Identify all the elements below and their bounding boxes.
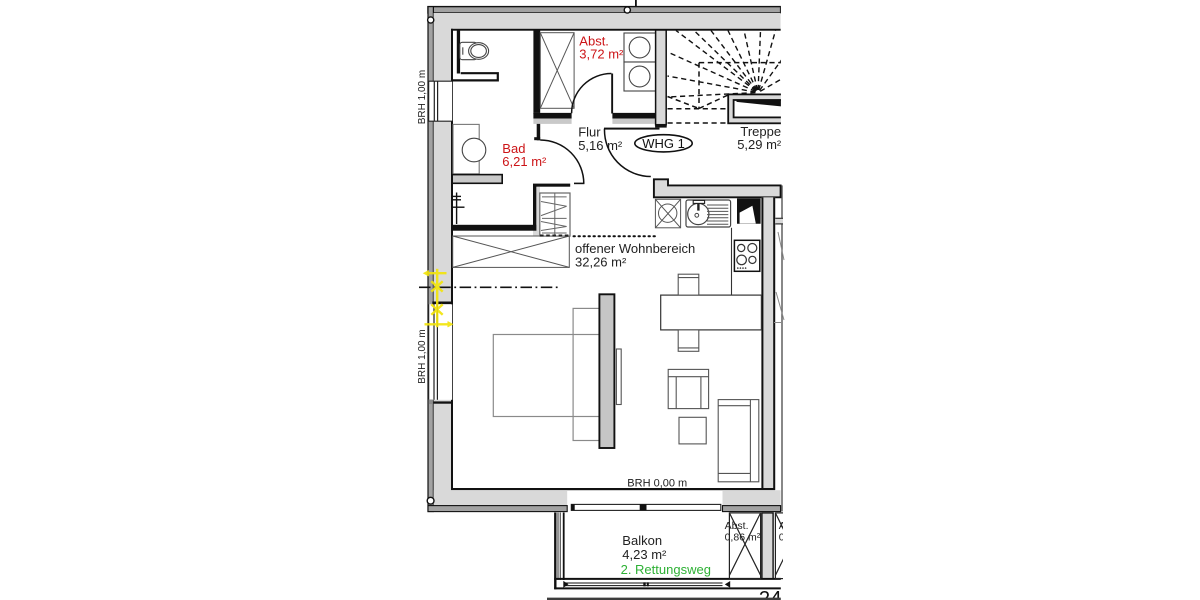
svg-text:5,16 m²: 5,16 m² bbox=[578, 138, 623, 153]
svg-text:4,23 m²: 4,23 m² bbox=[622, 547, 667, 562]
svg-text:2. Rettungsweg: 2. Rettungsweg bbox=[621, 562, 711, 577]
svg-text:Balkon: Balkon bbox=[622, 533, 662, 548]
svg-text:Abst.: Abst. bbox=[725, 520, 749, 532]
svg-text:offener Wohnbereich: offener Wohnbereich bbox=[575, 241, 695, 256]
svg-text:6,21 m²: 6,21 m² bbox=[502, 154, 547, 169]
svg-text:32,26 m²: 32,26 m² bbox=[575, 255, 627, 270]
svg-text:BRH 1,00 m: BRH 1,00 m bbox=[417, 70, 428, 124]
svg-text:BRH 0,00 m: BRH 0,00 m bbox=[627, 477, 687, 489]
svg-text:WHG 1: WHG 1 bbox=[642, 136, 685, 151]
svg-text:0,86 m²: 0,86 m² bbox=[725, 531, 761, 543]
svg-text:BRH 1,00 m: BRH 1,00 m bbox=[417, 329, 428, 383]
svg-text:3,72 m²: 3,72 m² bbox=[579, 46, 624, 61]
svg-text:5,29 m²: 5,29 m² bbox=[737, 137, 782, 152]
